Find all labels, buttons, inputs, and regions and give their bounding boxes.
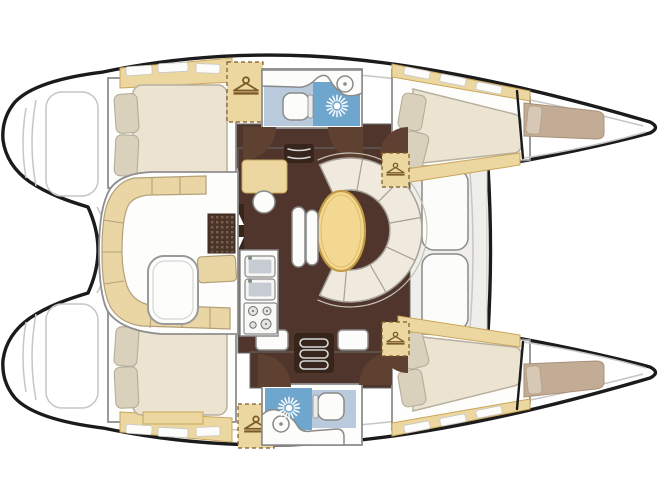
cockpit-corner-seat	[197, 255, 236, 283]
starboard-companionway-steps	[294, 333, 334, 373]
hatch-window	[196, 427, 220, 437]
salon-bench-seat	[292, 207, 305, 267]
galley	[240, 250, 278, 336]
washbasin-drain	[279, 422, 283, 426]
toilet-icon	[283, 93, 309, 120]
pillow	[526, 105, 543, 134]
pillow	[114, 134, 139, 176]
faucet-icon	[248, 256, 252, 260]
faucet-icon	[248, 279, 252, 283]
washbasin-drain	[343, 82, 347, 86]
aft-counter-right	[338, 330, 368, 350]
fwd-hanging-locker-port	[382, 153, 409, 187]
galley-sink-bowl	[248, 282, 272, 297]
port-aft-double-berth	[133, 85, 227, 180]
chart-table	[242, 160, 287, 193]
starboard-head	[262, 384, 362, 445]
dinette-table	[317, 191, 365, 271]
hatch-window	[126, 65, 153, 76]
pillow	[114, 366, 139, 408]
salon-bench-seat	[306, 210, 318, 265]
fwd-hanging-locker-stbd	[382, 322, 409, 356]
galley-sink-bowl	[248, 259, 272, 274]
hatch-window	[158, 62, 188, 73]
floor-plan-canvas	[0, 0, 667, 500]
teak-grate	[208, 214, 235, 253]
catamaran-floor-plan	[0, 0, 667, 500]
forward-window-upper	[422, 170, 468, 250]
shower-sunburst-icon	[278, 397, 299, 418]
hatch-window	[126, 424, 153, 435]
stove-burner-icon	[244, 303, 277, 334]
hatch-window	[158, 427, 188, 438]
toilet-tank	[308, 95, 313, 118]
cockpit	[99, 172, 238, 334]
port-companionway-steps	[284, 144, 314, 163]
pillow	[526, 365, 543, 394]
pillow	[114, 326, 140, 367]
shower-sunburst-icon	[326, 95, 347, 116]
chart-table-stool	[253, 191, 275, 213]
toilet-tank	[313, 395, 318, 418]
port-head	[262, 69, 362, 128]
forward-window-lower	[422, 254, 468, 330]
stbd-aft-foot-shelf	[143, 412, 203, 424]
toilet-icon	[318, 393, 344, 420]
pillow	[114, 93, 140, 134]
port-aft-hanging-locker	[227, 62, 263, 122]
hatch-window	[196, 64, 220, 74]
